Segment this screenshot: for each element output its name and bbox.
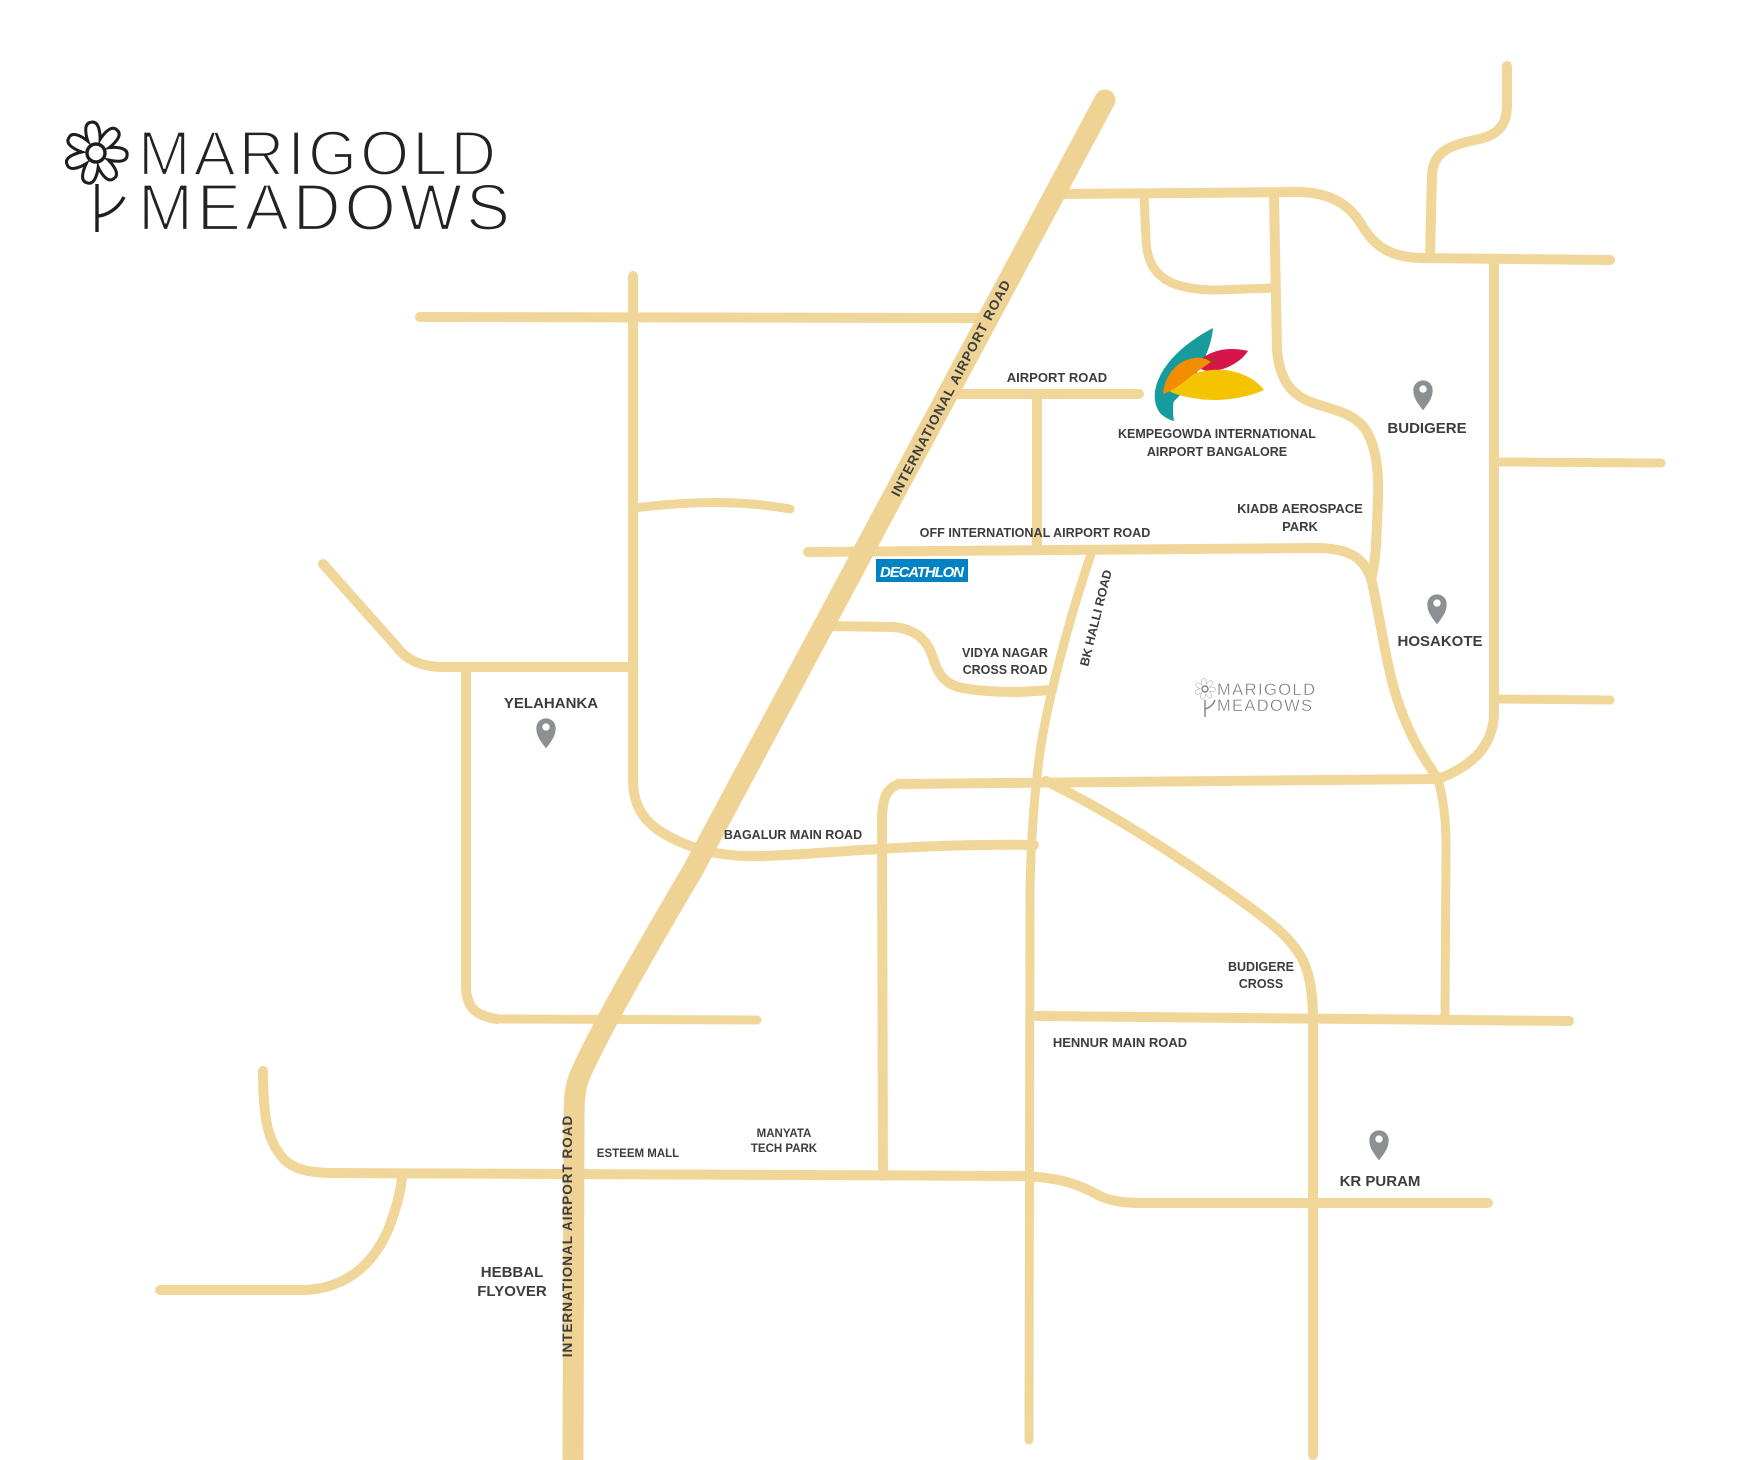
svg-text:BAGALUR MAIN ROAD: BAGALUR MAIN ROAD [724, 828, 862, 842]
svg-text:KEMPEGOWDA INTERNATIONAL: KEMPEGOWDA INTERNATIONAL [1118, 427, 1316, 441]
svg-text:PARK: PARK [1282, 519, 1318, 534]
svg-text:AIRPORT ROAD: AIRPORT ROAD [1007, 370, 1107, 385]
svg-text:HEBBAL: HEBBAL [481, 1264, 544, 1281]
svg-text:AIRPORT BANGALORE: AIRPORT BANGALORE [1147, 445, 1287, 459]
svg-text:MANYATA: MANYATA [757, 1128, 812, 1140]
svg-text:BUDIGERE: BUDIGERE [1387, 420, 1466, 437]
svg-text:DECATHLON: DECATHLON [880, 564, 965, 581]
svg-text:YELAHANKA: YELAHANKA [504, 695, 598, 712]
svg-text:VIDYA NAGAR: VIDYA NAGAR [962, 646, 1048, 660]
svg-text:TECH PARK: TECH PARK [751, 1143, 818, 1155]
svg-text:KIADB AEROSPACE: KIADB AEROSPACE [1237, 501, 1363, 516]
svg-text:ESTEEM MALL: ESTEEM MALL [597, 1148, 679, 1160]
svg-text:INTERNATIONAL AIRPORT ROAD: INTERNATIONAL AIRPORT ROAD [560, 1115, 575, 1358]
svg-text:FLYOVER: FLYOVER [477, 1283, 547, 1300]
svg-text:MEADOWS: MEADOWS [1217, 697, 1312, 715]
svg-text:HOSAKOTE: HOSAKOTE [1397, 633, 1482, 650]
svg-text:OFF INTERNATIONAL AIRPORT ROAD: OFF INTERNATIONAL AIRPORT ROAD [920, 526, 1151, 540]
svg-text:CROSS: CROSS [1239, 977, 1283, 991]
svg-text:BUDIGERE: BUDIGERE [1228, 960, 1294, 974]
svg-text:CROSS ROAD: CROSS ROAD [963, 663, 1048, 677]
svg-text:KR PURAM: KR PURAM [1340, 1173, 1421, 1190]
svg-text:HENNUR MAIN ROAD: HENNUR MAIN ROAD [1053, 1035, 1187, 1050]
